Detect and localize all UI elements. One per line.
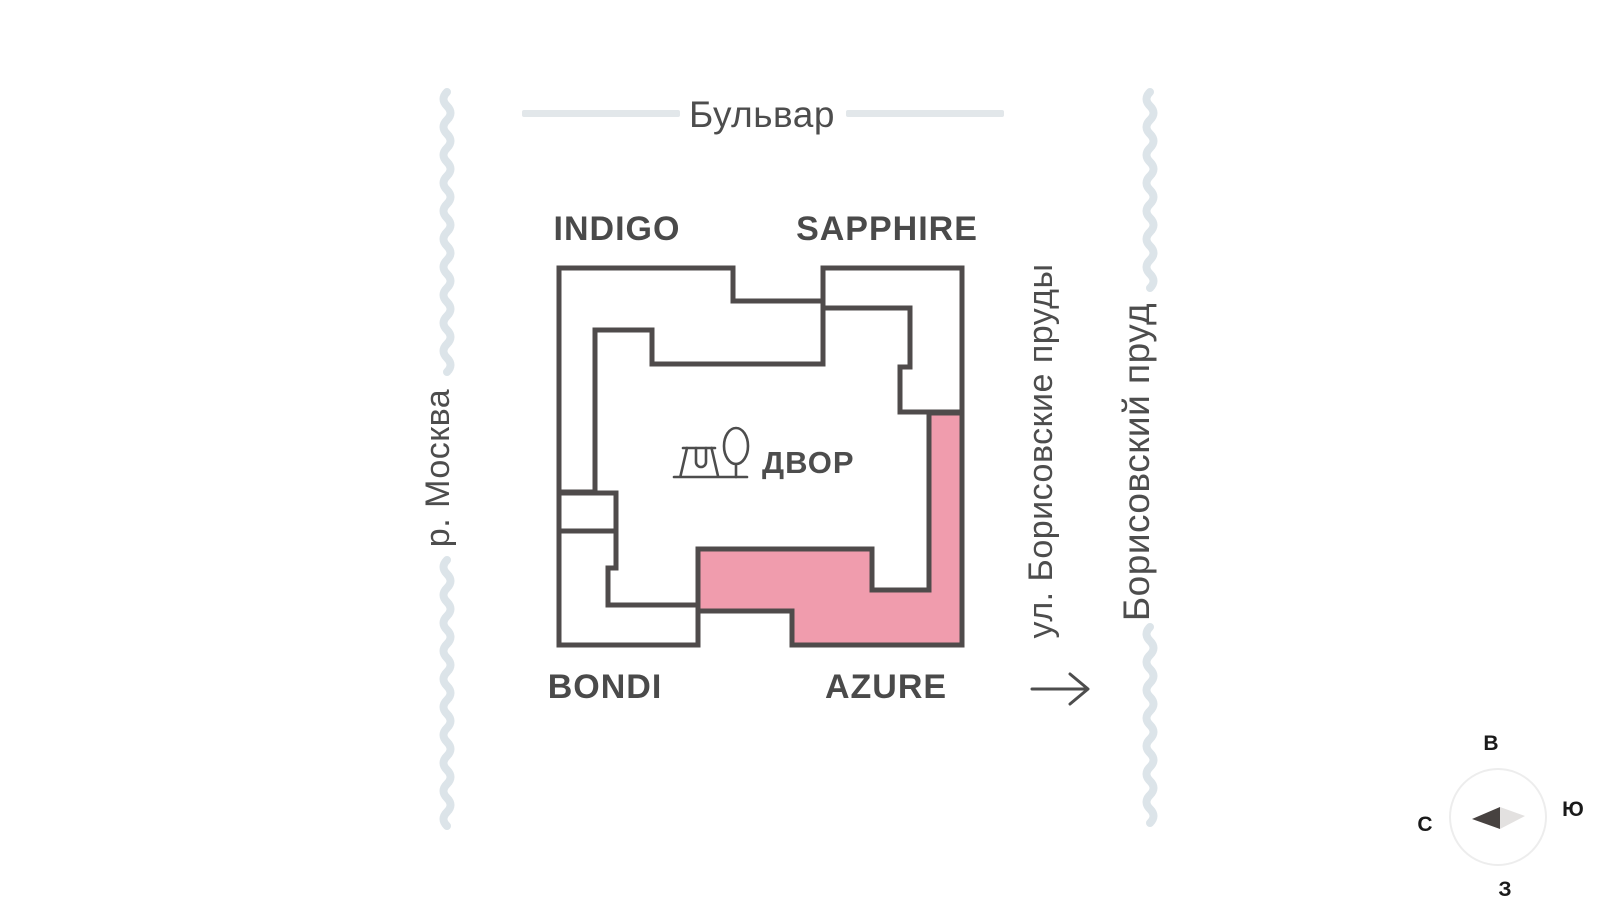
pond-right-label: Борисовский пруд [1116, 303, 1157, 621]
boulevard-dash-left [522, 110, 680, 117]
site-plan: Бульвар р. Москва ул. Борисовские пруды … [0, 0, 1600, 920]
building-sapphire-shape[interactable] [823, 268, 962, 412]
boulevard-dash-right [846, 110, 1004, 117]
compass-south-label: Ю [1562, 798, 1584, 821]
river-wave-left-bottom [444, 560, 451, 826]
river-wave-left-top [444, 92, 451, 372]
street-direction-arrow-icon [1032, 674, 1088, 704]
compass: В Ю С З [1417, 732, 1583, 901]
building-indigo-label[interactable]: INDIGO [554, 210, 681, 248]
river-left-label: р. Москва [419, 389, 457, 547]
pond-wave-right-top [1147, 92, 1154, 288]
building-azure-label[interactable]: AZURE [825, 668, 947, 706]
courtyard: ДВОР [674, 428, 855, 480]
building-bondi-label[interactable]: BONDI [548, 668, 663, 706]
compass-west-label: З [1498, 878, 1511, 901]
courtyard-label: ДВОР [762, 445, 855, 480]
boulevard-label: Бульвар [689, 94, 835, 135]
building-bondi-link-shape[interactable] [559, 493, 616, 531]
boulevard-header: Бульвар [522, 94, 1004, 135]
pond-wave-right-bottom [1147, 627, 1154, 823]
compass-north-label: С [1417, 813, 1432, 836]
buildings [559, 268, 962, 645]
tree-icon [724, 428, 748, 477]
building-bondi-shape[interactable] [559, 531, 698, 645]
street-right-label: ул. Борисовские пруды [1022, 264, 1060, 639]
compass-east-label: В [1483, 732, 1498, 755]
building-sapphire-label[interactable]: SAPPHIRE [796, 210, 978, 248]
site-plan-page: Бульвар р. Москва ул. Борисовские пруды … [0, 0, 1600, 920]
